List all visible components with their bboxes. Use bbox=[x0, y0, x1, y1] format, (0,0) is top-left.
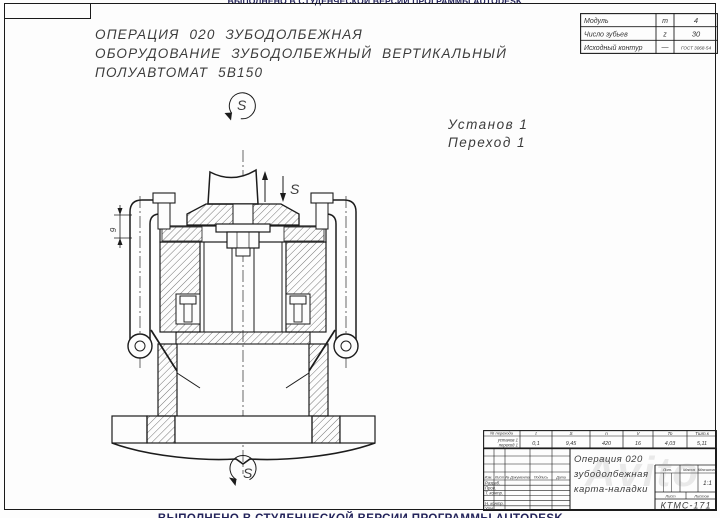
role-label: Т. контр. bbox=[485, 491, 503, 496]
sign-col: Подпись bbox=[534, 476, 548, 480]
cutter-spindle bbox=[208, 170, 258, 204]
cut-header: t bbox=[535, 431, 537, 436]
sheets-label: Листов bbox=[693, 493, 709, 498]
cut-value: 0,1 bbox=[532, 441, 540, 447]
stroke-label: S bbox=[290, 181, 300, 197]
title-block: № перехода t S n V To Тшт.к установ 1 пе… bbox=[483, 430, 717, 511]
sign-col: № Документа bbox=[505, 476, 529, 480]
table-break-line bbox=[112, 443, 375, 464]
cut-value: 16 bbox=[635, 441, 641, 447]
cut-header: V bbox=[636, 431, 640, 436]
cut-col0-header: № перехода bbox=[490, 431, 514, 436]
sign-col: Дата bbox=[555, 476, 565, 480]
cut-value: 420 bbox=[602, 441, 611, 447]
sign-col: Лист bbox=[494, 476, 504, 480]
doc-title-line: зубодолбежная bbox=[573, 469, 649, 480]
fixture-base bbox=[112, 344, 375, 464]
stroke-arrows bbox=[262, 171, 286, 202]
drawing-sheet: ВЫПОЛНЕНО В СТУДЕНЧЕСКОЙ ВЕРСИИ ПРОГРАММ… bbox=[0, 0, 720, 518]
cutter-head bbox=[187, 204, 299, 225]
doc-title-line: Операция 020 bbox=[574, 454, 643, 465]
spindle-rotation-label: S bbox=[237, 97, 247, 113]
cut-value: 4,03 bbox=[665, 441, 676, 447]
scale-value: 1:1 bbox=[703, 480, 712, 487]
doc-number: КТМС-171 bbox=[661, 501, 712, 511]
dim-9-label: 9 bbox=[108, 227, 118, 232]
doc-title-line: карта-наладки bbox=[574, 484, 648, 495]
role-label: Утв. bbox=[485, 506, 495, 511]
cut-header: n bbox=[605, 431, 608, 436]
cut-header: To bbox=[668, 431, 673, 436]
cut-header: S bbox=[569, 431, 573, 436]
table-rotation-label: S bbox=[243, 465, 253, 481]
cut-header: Тшт.к bbox=[695, 431, 710, 436]
cut-value: 5,11 bbox=[697, 441, 707, 447]
scale-label: Масштаб bbox=[698, 467, 717, 472]
row-label: переход 1 bbox=[499, 443, 518, 448]
cut-value: 9,45 bbox=[566, 441, 577, 447]
mass-label: Масса bbox=[683, 467, 696, 472]
lit-label: Лит. bbox=[662, 467, 672, 472]
sign-col: Изм. bbox=[485, 476, 493, 480]
sheet-label: Лист bbox=[664, 493, 676, 498]
